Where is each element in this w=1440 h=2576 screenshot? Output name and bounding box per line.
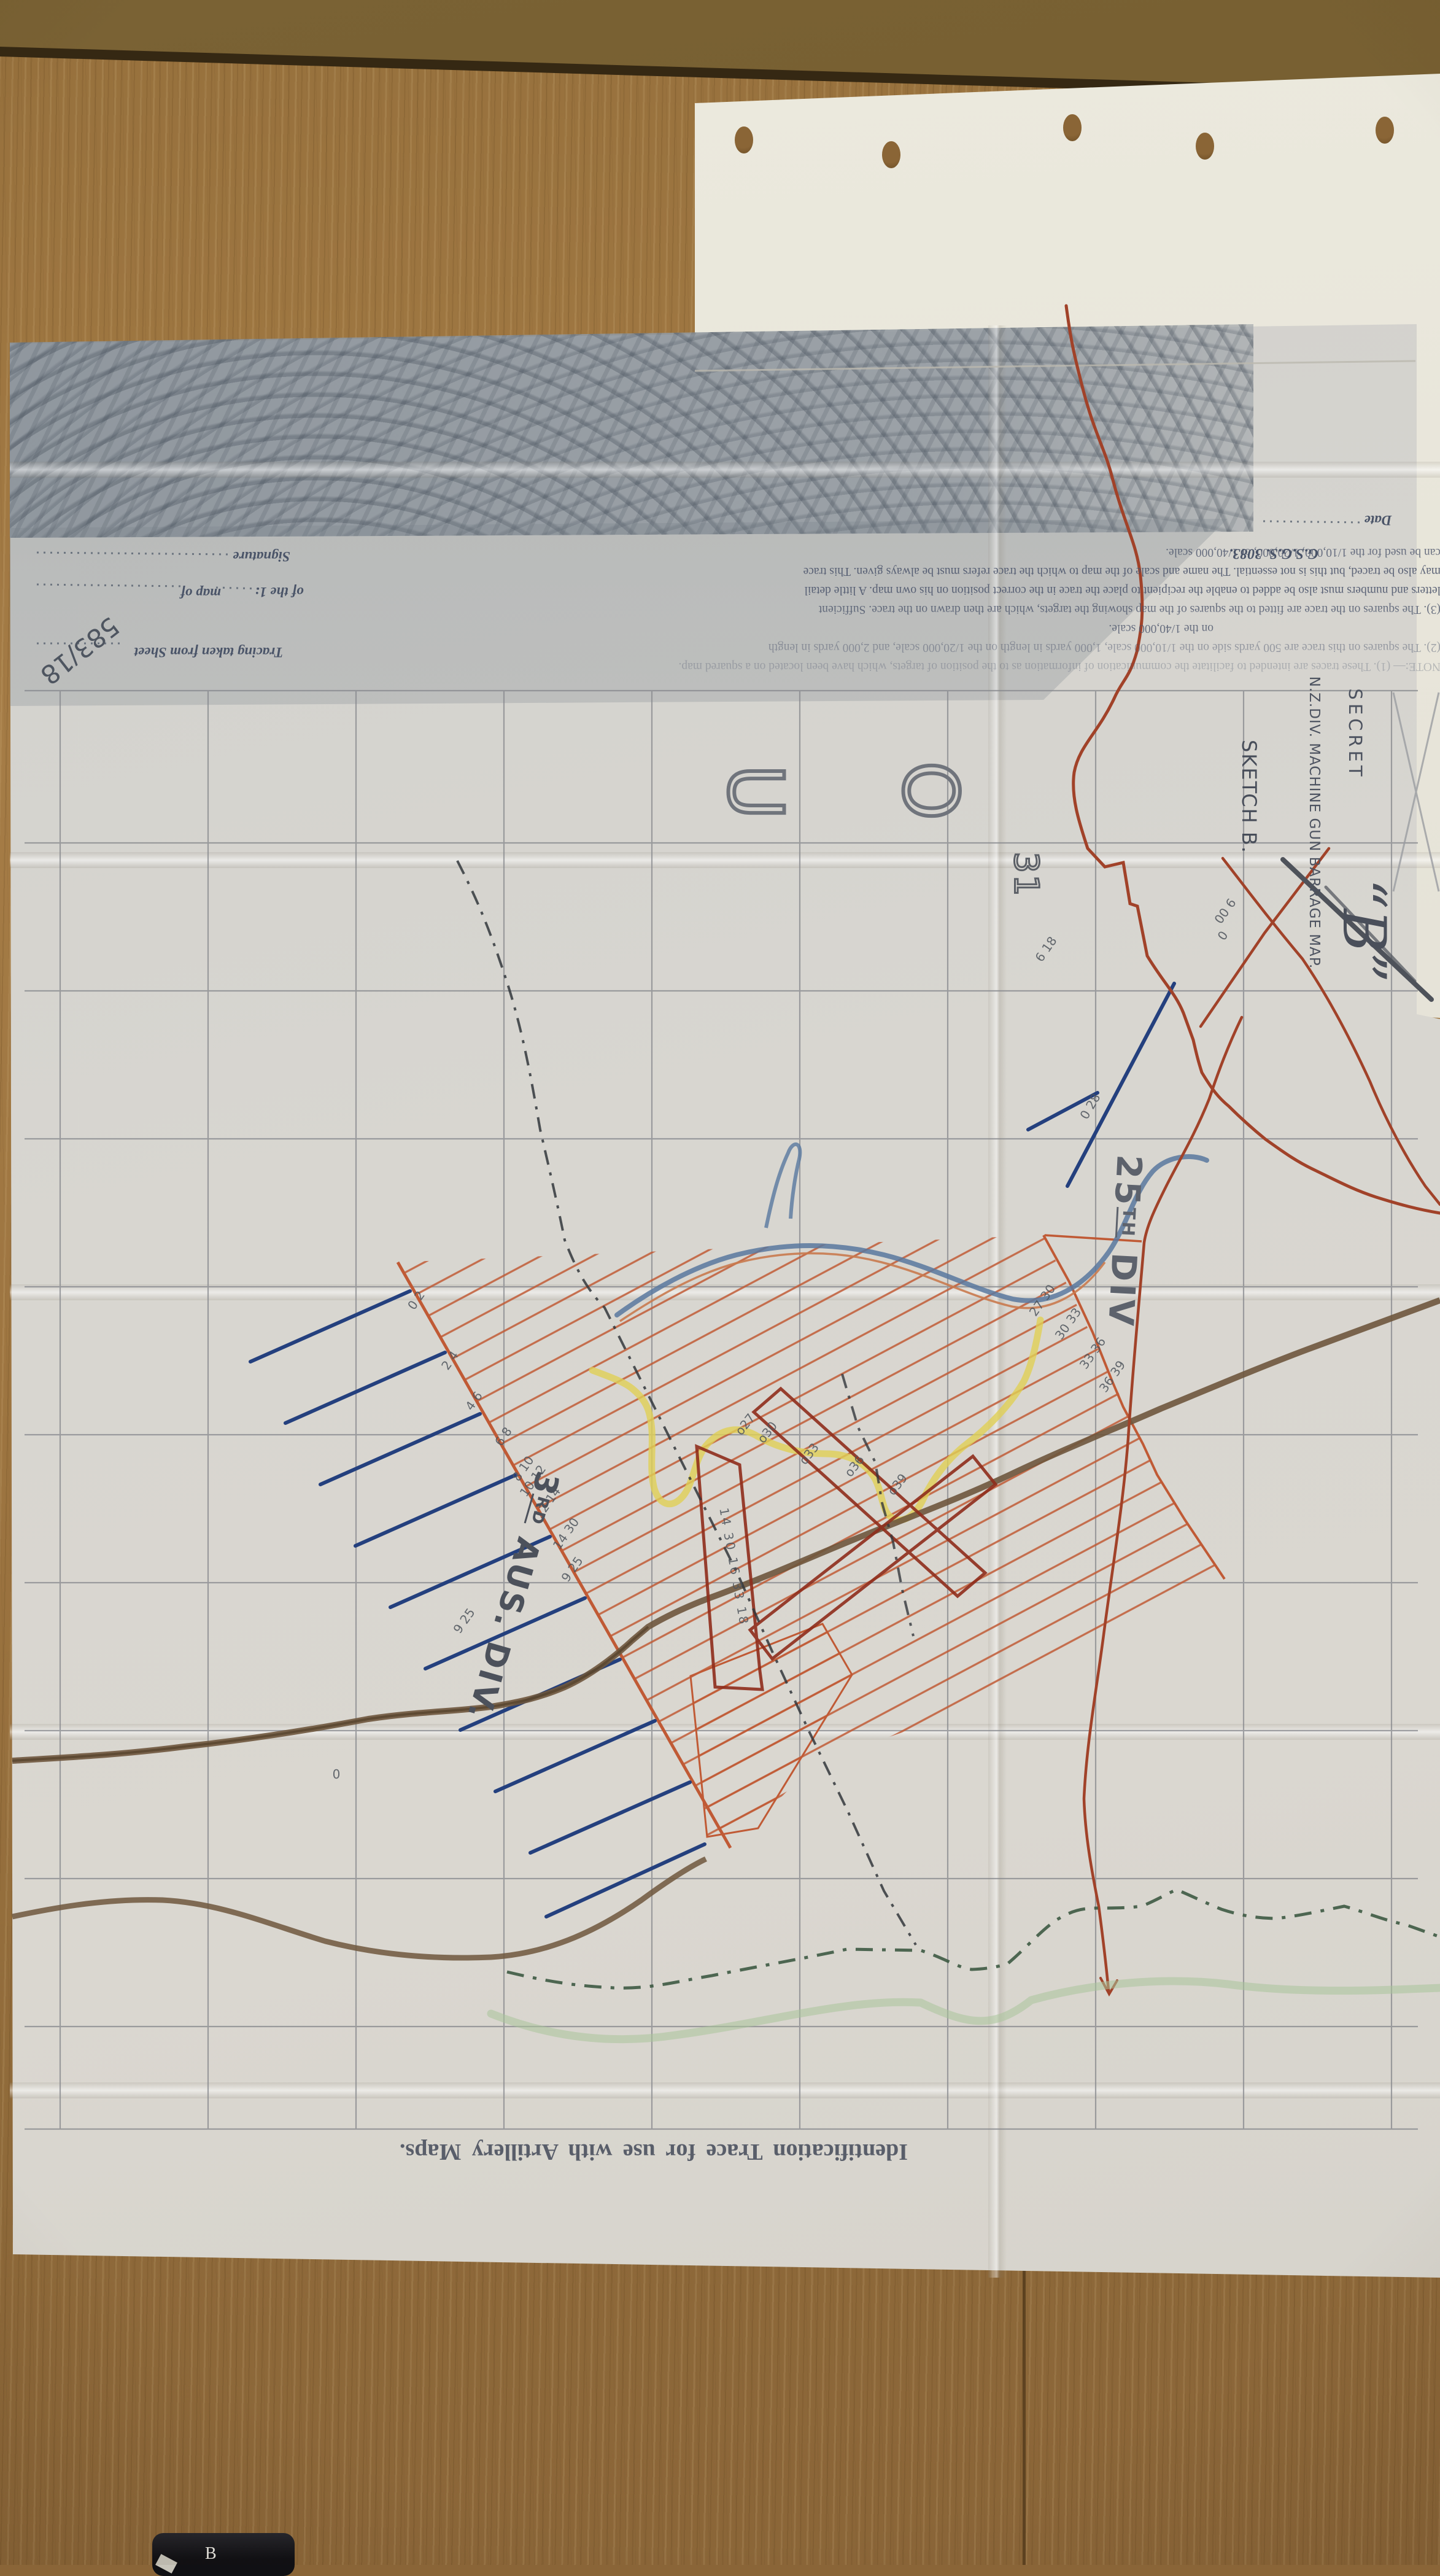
photo-vignette [0, 0, 1440, 2565]
photo-of-barrage-map: SECRET N.Z.DIV. MACHINE GUN BARRAGE MAP.… [0, 0, 1440, 2565]
